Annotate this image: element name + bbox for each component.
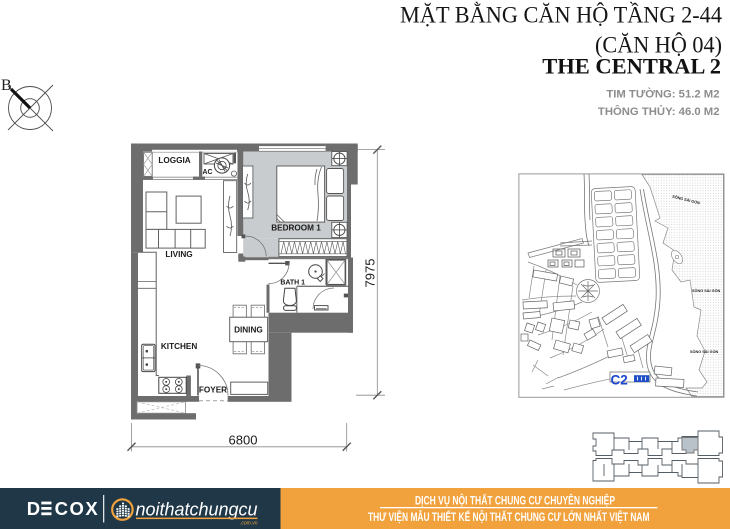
svg-text:THÔNG THỦY: 46.0 M2: THÔNG THỦY: 46.0 M2 (598, 105, 720, 118)
svg-text:6800: 6800 (229, 433, 258, 448)
svg-text:D: D (27, 498, 40, 519)
svg-text:MẶT BẰNG CĂN HỘ TẦNG 2-44: MẶT BẰNG CĂN HỘ TẦNG 2-44 (400, 1, 722, 27)
svg-text:KITCHEN: KITCHEN (161, 342, 197, 351)
svg-text:.com.vn: .com.vn (240, 521, 258, 527)
svg-text:noithatchungcu: noithatchungcu (136, 500, 258, 520)
svg-text:7975: 7975 (363, 259, 378, 288)
svg-text:DỊCH VỤ NỘI THẤT CHUNG CƯ CHUY: DỊCH VỤ NỘI THẤT CHUNG CƯ CHUYÊN NGHIỆP (415, 494, 615, 507)
svg-text:B: B (1, 77, 12, 94)
svg-text:THE CENTRAL 2: THE CENTRAL 2 (542, 54, 721, 79)
svg-text:TIM TƯỜNG: 51.2 M2: TIM TƯỜNG: 51.2 M2 (606, 87, 719, 100)
svg-text:C2: C2 (611, 373, 628, 388)
svg-text:COX: COX (55, 498, 100, 519)
svg-text:SÔNG SÀI GÒN: SÔNG SÀI GÒN (692, 288, 721, 293)
svg-text:SÔNG SÀI GÒN: SÔNG SÀI GÒN (690, 349, 719, 354)
svg-text:BATH 1: BATH 1 (280, 280, 305, 287)
svg-text:THƯ VIỆN MẪU THIẾT KẾ NỘI THẤT: THƯ VIỆN MẪU THIẾT KẾ NỘI THẤT CHUNG CƯ … (368, 511, 650, 524)
svg-text:LOGGIA: LOGGIA (158, 156, 190, 165)
svg-text:FOYER: FOYER (199, 385, 227, 394)
svg-text:LIVING: LIVING (165, 250, 192, 259)
svg-text:DINING: DINING (234, 326, 263, 335)
svg-text:AC: AC (203, 169, 213, 176)
svg-text:BEDROOM 1: BEDROOM 1 (271, 223, 321, 232)
